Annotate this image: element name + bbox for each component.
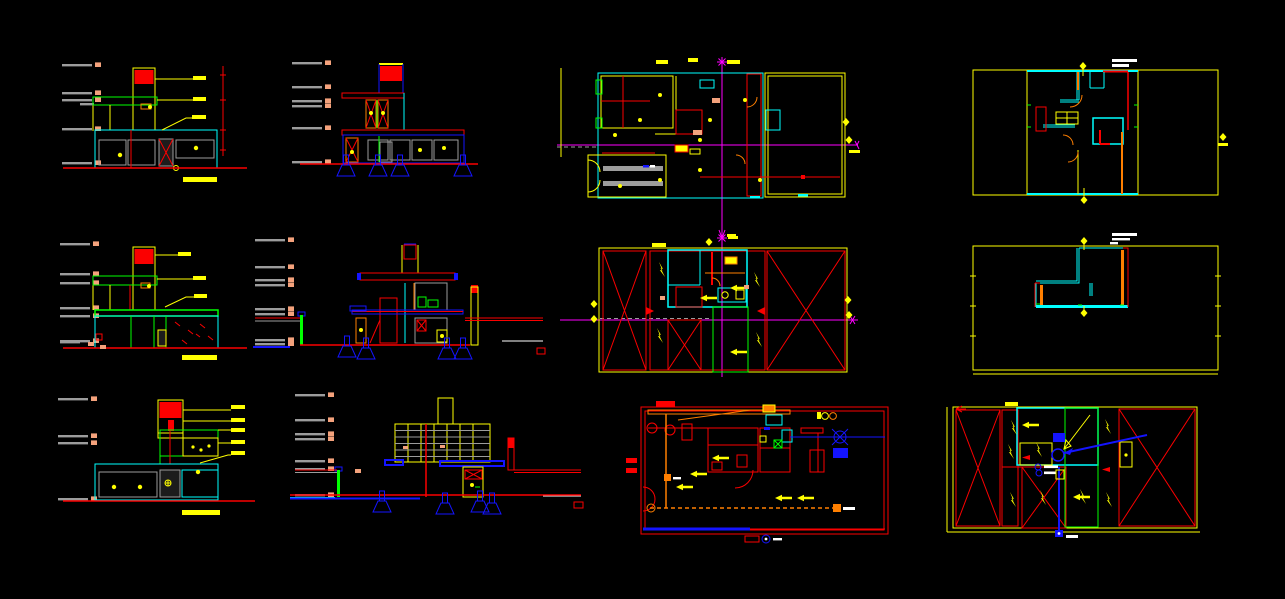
drawing-elevation-3[interactable] [58, 396, 255, 515]
section-2-right-wing [465, 285, 545, 354]
section-2-structure [253, 244, 470, 347]
plan-boundary [970, 246, 1221, 374]
plan-markers [843, 118, 853, 144]
elevation-1-building [63, 68, 247, 171]
elevation-3-dimensions [183, 405, 245, 463]
section-3-ground [290, 491, 581, 514]
drawing-title-bar [182, 510, 220, 515]
void-panels [603, 251, 845, 370]
drawing-section-1[interactable] [292, 60, 478, 176]
plan-boundary [947, 402, 1200, 532]
fixtures [760, 415, 792, 448]
section-3-structure [355, 398, 504, 498]
drawing-first-floor-roof-plan[interactable] [560, 233, 858, 377]
drawing-roof-drainage-plan[interactable] [947, 402, 1200, 538]
scale-bars [1112, 59, 1137, 67]
drawing-upper-floor-plan[interactable] [973, 59, 1228, 283]
plan-interior-walls [1036, 72, 1128, 283]
cad-drawing-sheet[interactable] [0, 0, 1285, 599]
section-1-structure [300, 64, 478, 176]
drawing-title-bar [182, 355, 217, 360]
drawing-ground-floor-plan[interactable] [557, 57, 860, 238]
elevation-2-building [60, 247, 247, 349]
drawing-installations-plan[interactable] [626, 401, 888, 543]
plan-markers [1080, 62, 1229, 204]
cad-canvas[interactable] [0, 0, 1285, 599]
room-text-marks [1049, 84, 1117, 181]
dimension-labels [295, 392, 334, 497]
drawing-title-bar [183, 177, 217, 182]
scale-bars [1110, 233, 1137, 244]
drawing-top-level-plan[interactable] [970, 233, 1221, 374]
l-shaped-room [1035, 248, 1128, 308]
house-walls [643, 423, 824, 511]
dimension-labels [255, 237, 294, 346]
drawing-section-2[interactable] [253, 237, 545, 359]
void-panels [956, 406, 1195, 528]
drawing-section-3[interactable] [290, 392, 583, 514]
section-3-right-wing [508, 438, 583, 508]
plan-boundary [973, 70, 1218, 195]
drawing-elevation-1[interactable] [62, 62, 247, 182]
elevation-2-dimensions [155, 252, 207, 307]
dimension-labels [58, 396, 97, 501]
dimension-labels [292, 60, 331, 164]
drawing-elevation-2[interactable] [60, 241, 247, 360]
bottom-services [643, 529, 885, 543]
plan-pergola [588, 155, 666, 197]
flow-arrows [676, 455, 814, 501]
elevation-3-building [63, 400, 255, 501]
section-3-left-terrace [290, 467, 342, 498]
